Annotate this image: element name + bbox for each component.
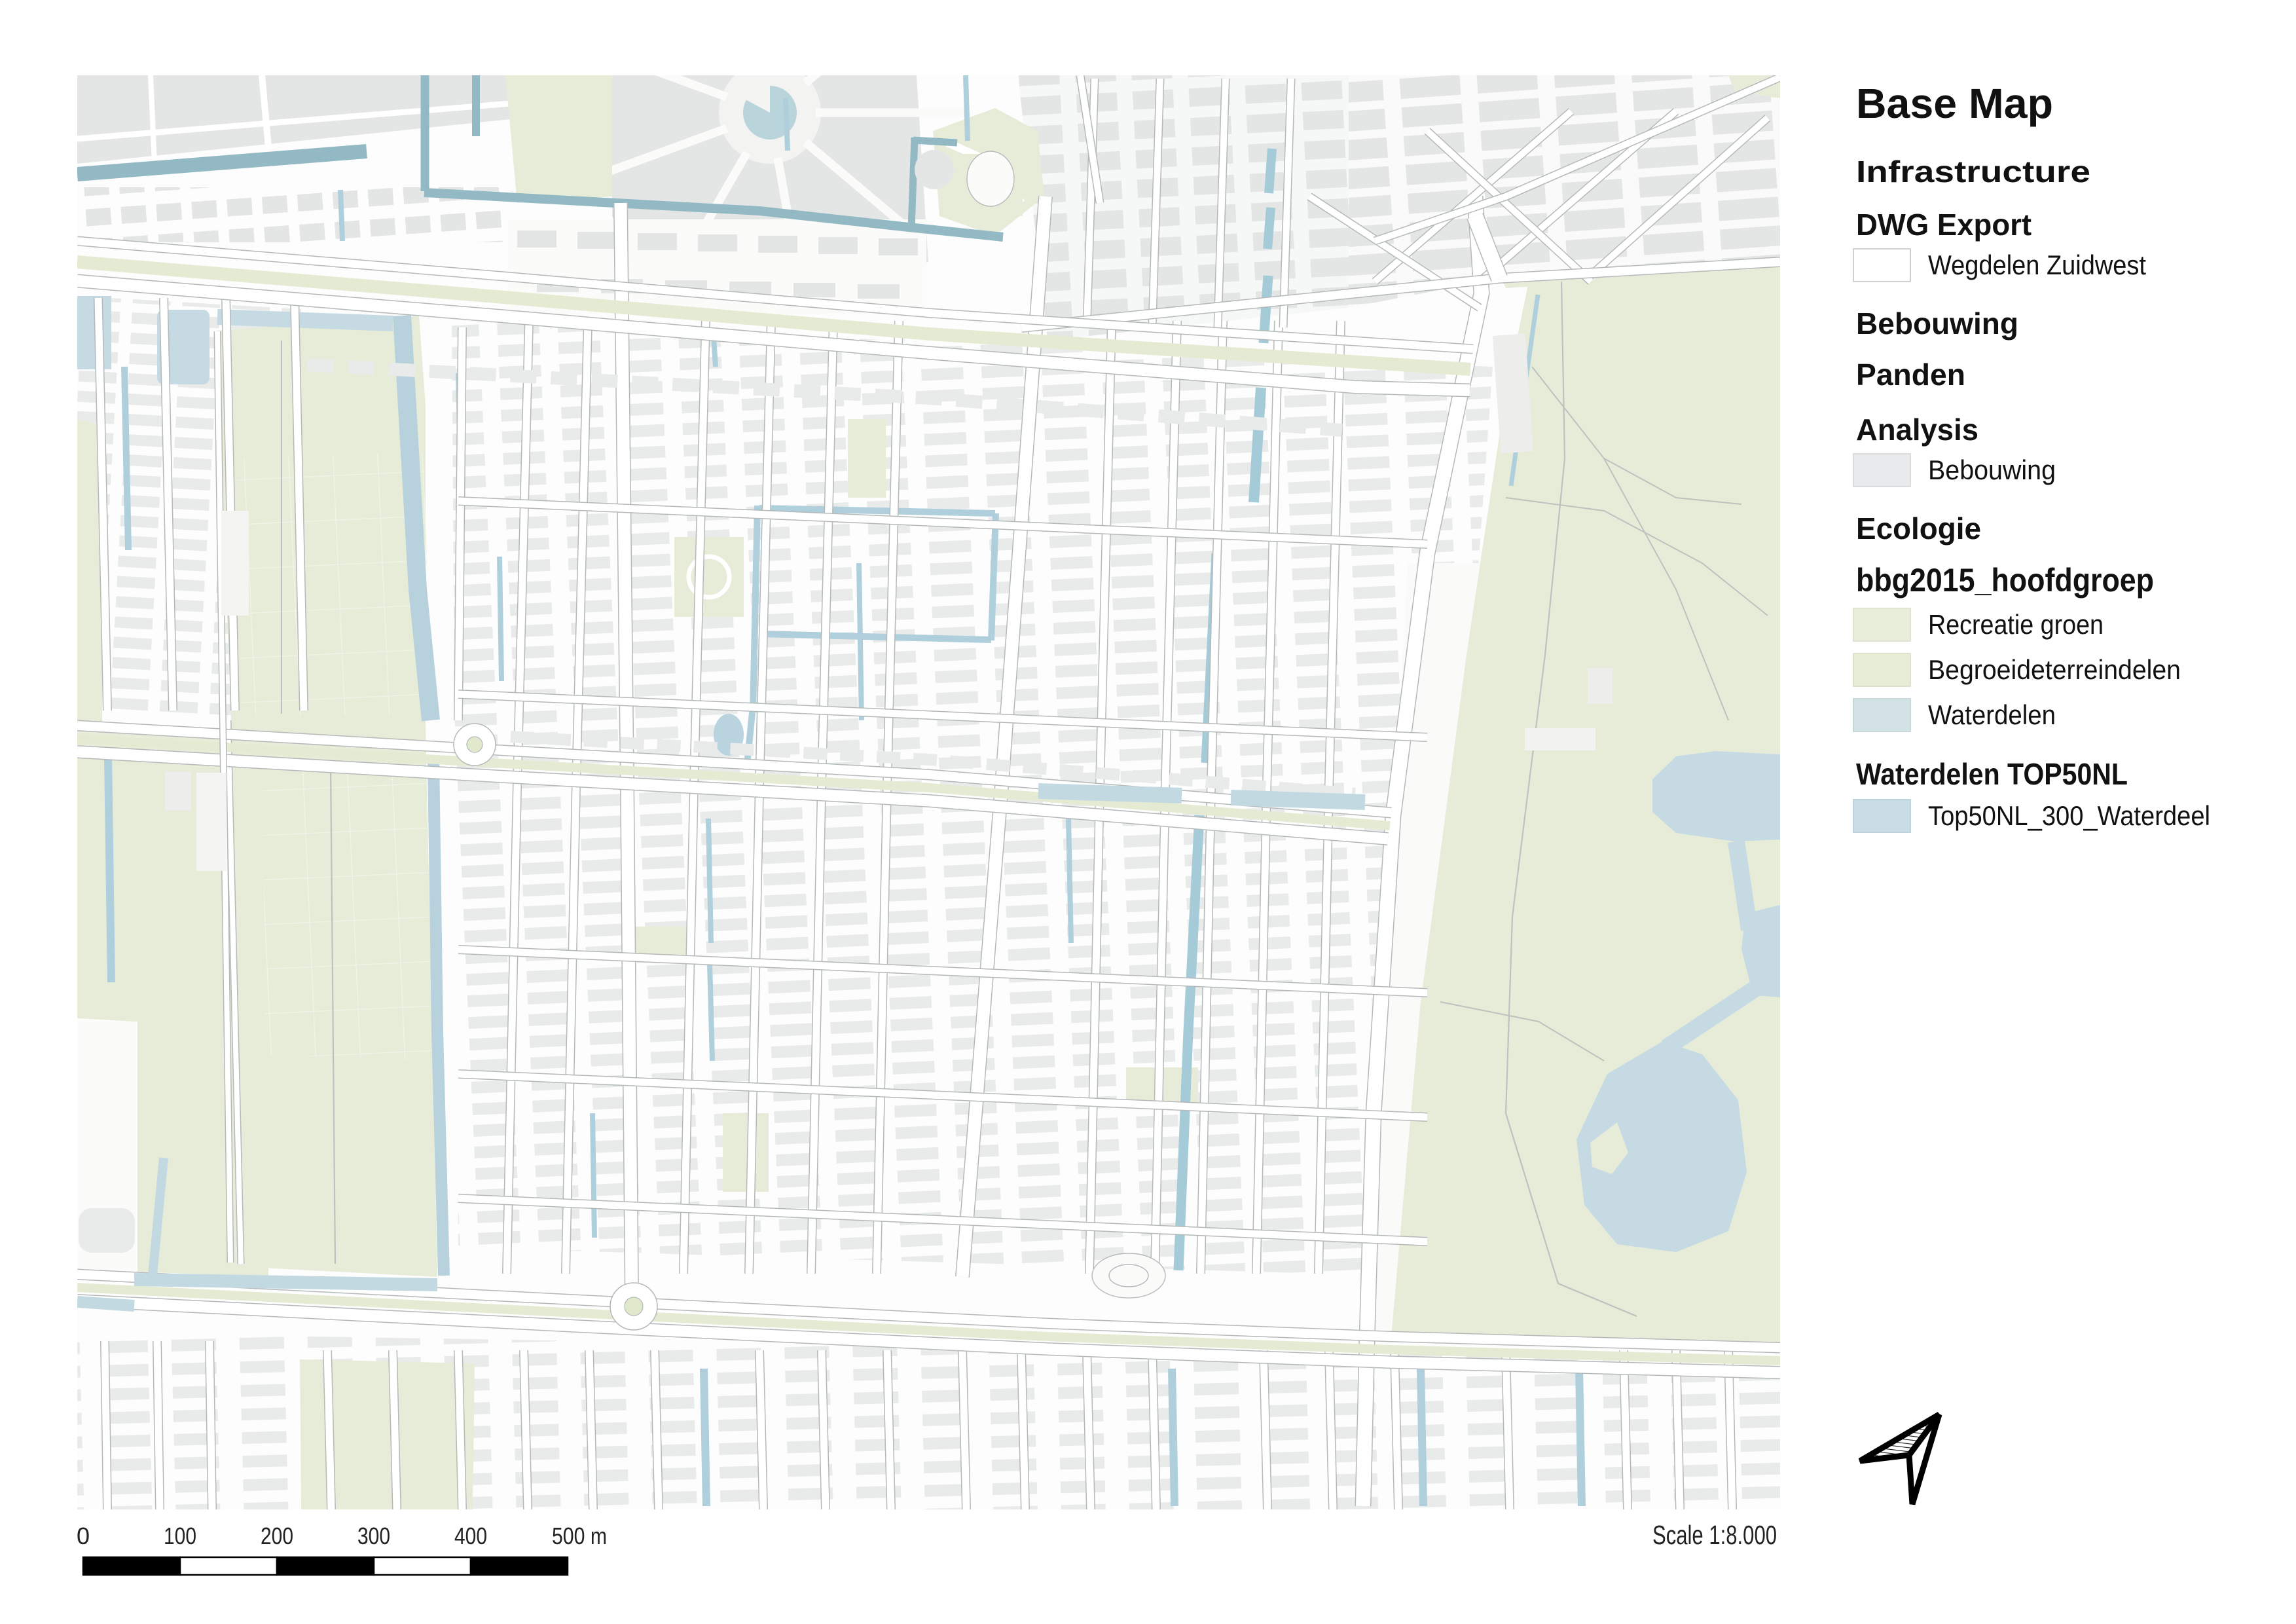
svg-text:Scale 1:8.000: Scale 1:8.000 bbox=[1652, 1520, 1777, 1550]
svg-text:100: 100 bbox=[164, 1522, 196, 1549]
svg-text:0: 0 bbox=[77, 1522, 90, 1549]
svg-text:Infrastructure: Infrastructure bbox=[1856, 155, 2090, 189]
svg-text:Bebouwing: Bebouwing bbox=[1928, 454, 2056, 485]
svg-text:Ecologie: Ecologie bbox=[1856, 511, 1981, 545]
svg-text:bbg2015_hoofdgroep: bbg2015_hoofdgroep bbox=[1856, 562, 2154, 599]
svg-text:Wegdelen Zuidwest: Wegdelen Zuidwest bbox=[1928, 249, 2146, 280]
svg-text:200: 200 bbox=[261, 1522, 293, 1549]
svg-text:Recreatie groen: Recreatie groen bbox=[1928, 609, 2104, 640]
svg-text:Waterdelen TOP50NL: Waterdelen TOP50NL bbox=[1856, 757, 2128, 791]
svg-text:Waterdelen: Waterdelen bbox=[1928, 699, 2056, 730]
svg-text:Panden: Panden bbox=[1856, 358, 1965, 392]
svg-text:DWG Export: DWG Export bbox=[1856, 208, 2032, 242]
svg-text:Top50NL_300_Waterdeel: Top50NL_300_Waterdeel bbox=[1928, 800, 2210, 831]
svg-text:300: 300 bbox=[357, 1522, 390, 1549]
svg-text:400: 400 bbox=[454, 1522, 487, 1549]
svg-text:Bebouwing: Bebouwing bbox=[1856, 306, 2018, 341]
svg-text:Begroeideterreindelen: Begroeideterreindelen bbox=[1928, 654, 2181, 685]
svg-text:500 m: 500 m bbox=[552, 1522, 607, 1549]
svg-text:Base Map: Base Map bbox=[1856, 80, 2053, 127]
svg-text:Analysis: Analysis bbox=[1856, 413, 1978, 447]
